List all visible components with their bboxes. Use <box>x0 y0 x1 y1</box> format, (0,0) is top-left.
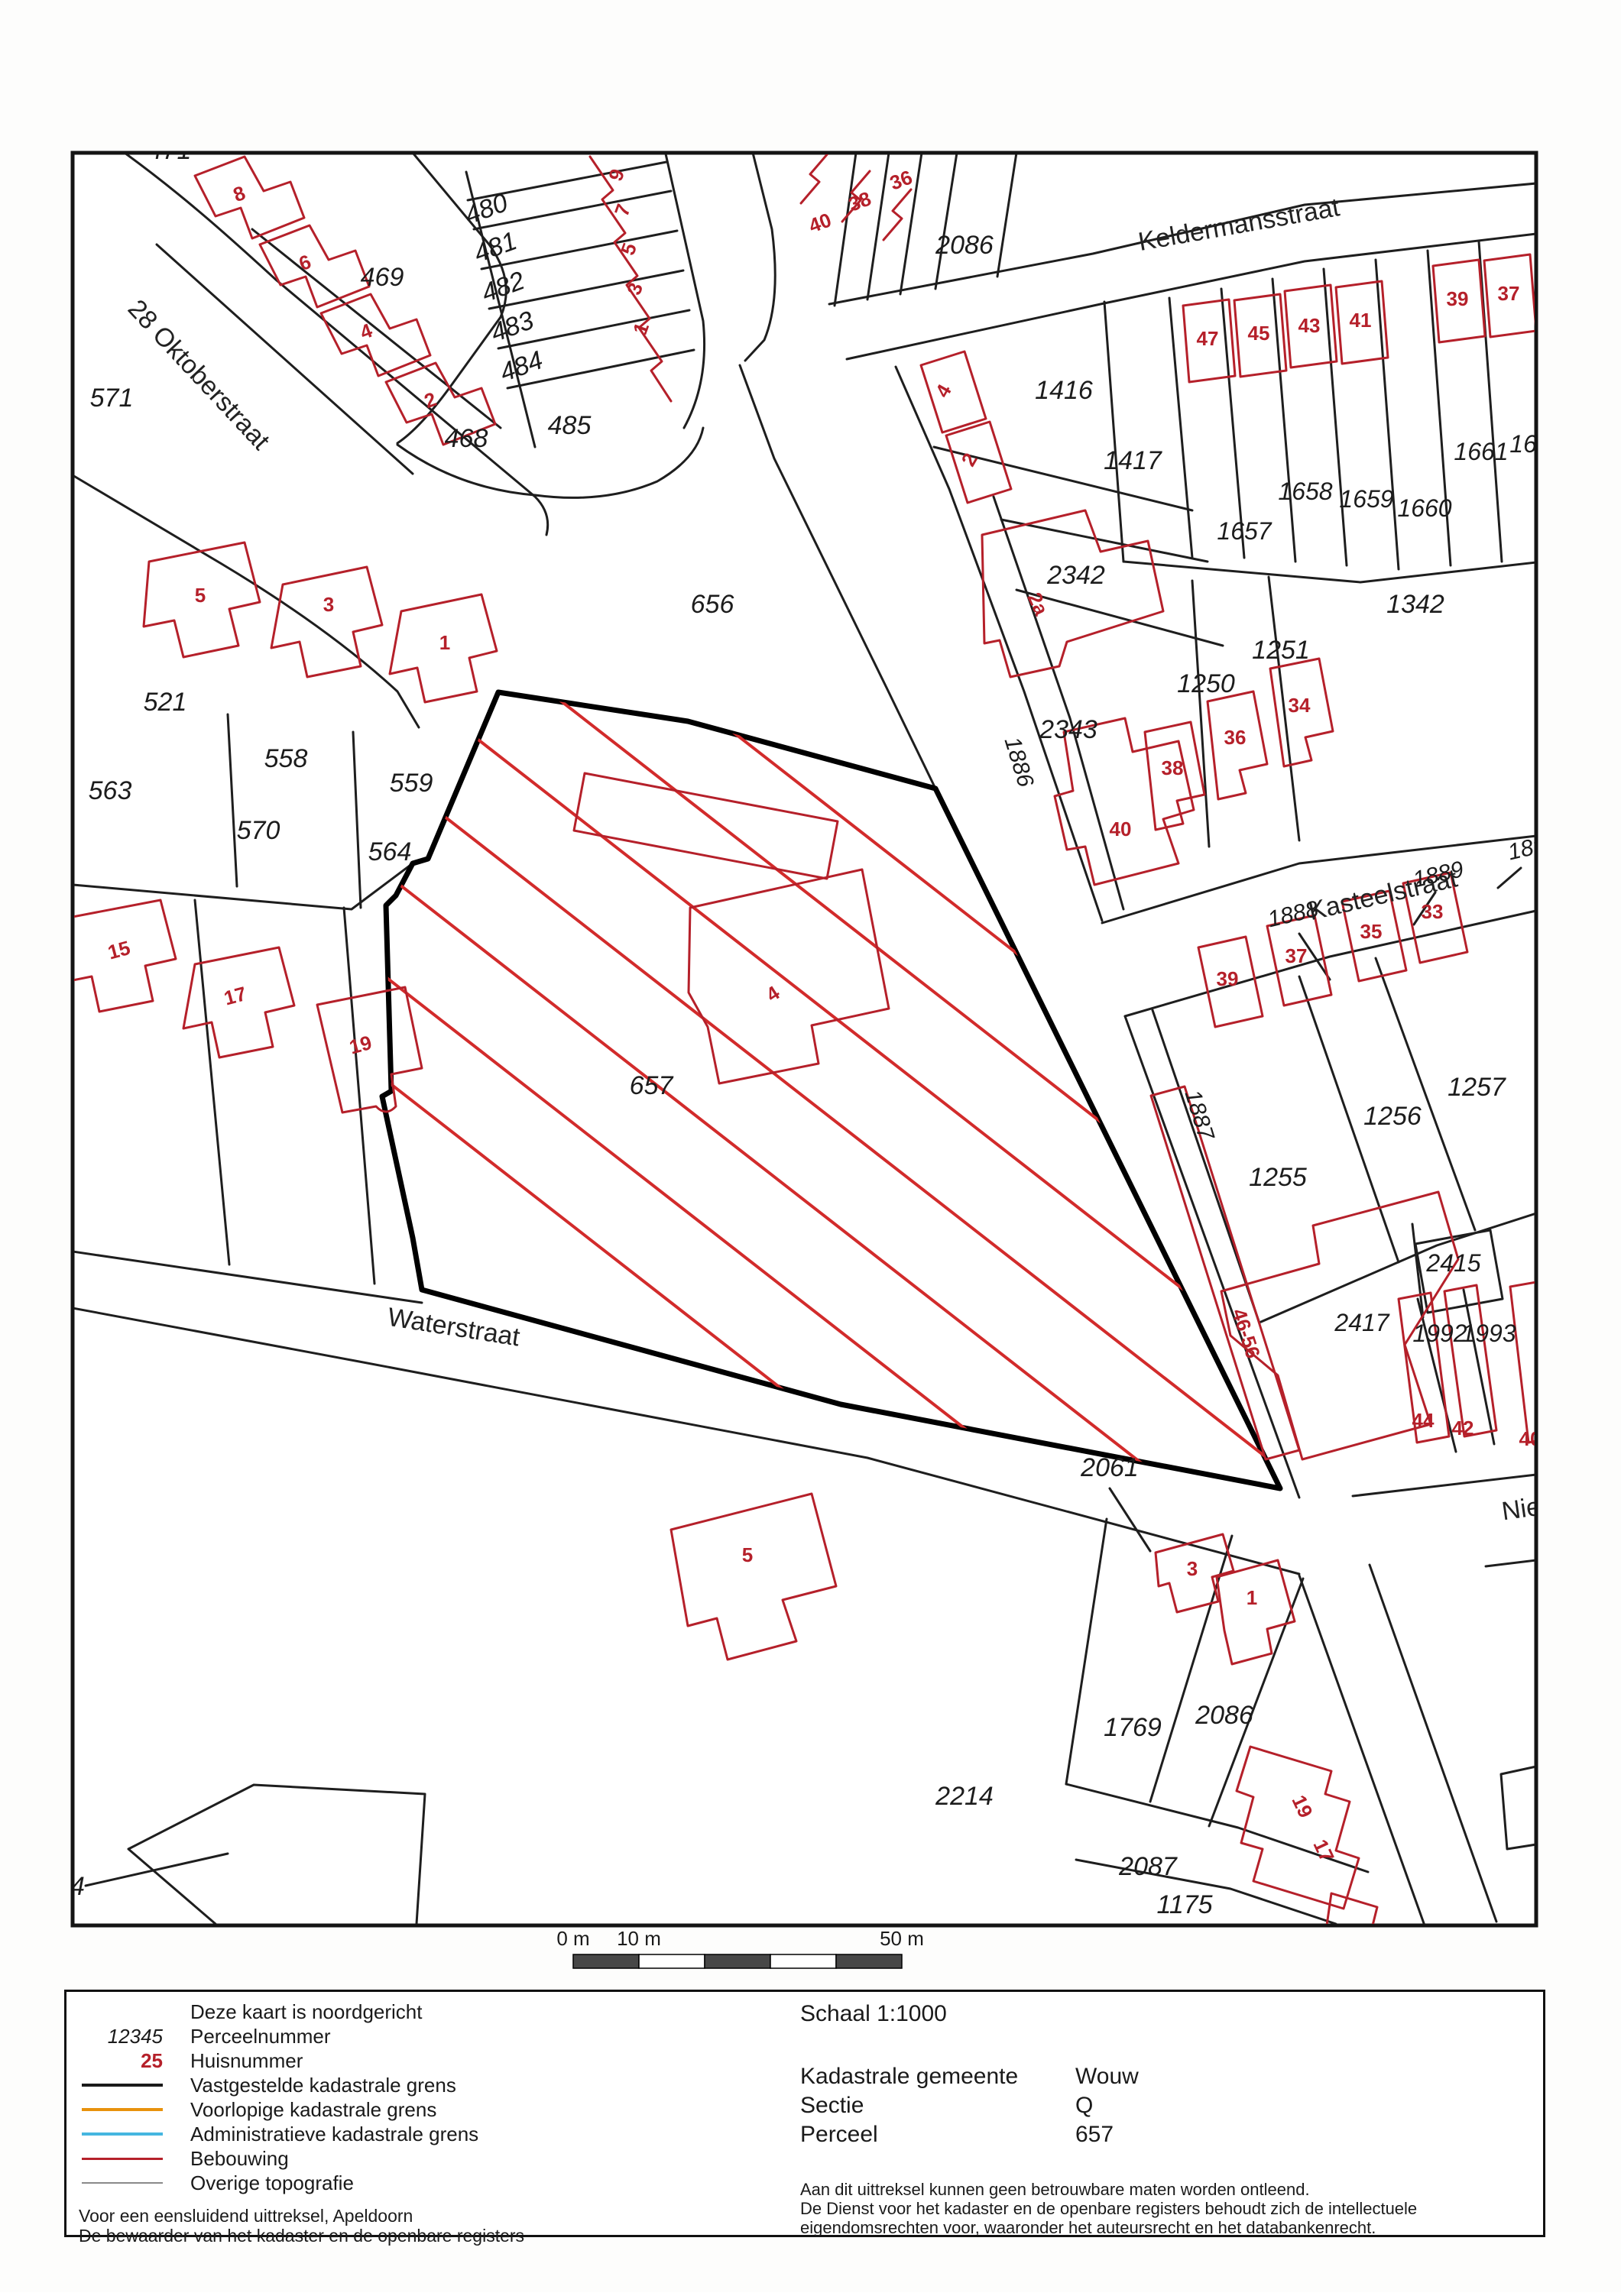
parcel-label-558-12: 558 <box>264 744 308 773</box>
house-label-5-40: 5 <box>742 1543 753 1566</box>
legend: Deze kaart is noordgericht 12345 Perceel… <box>79 2000 751 2246</box>
parcel-label-468-9: 468 <box>445 424 488 453</box>
cadastral-extract-page: 28 OktoberstraatKeldermansstraatKasteels… <box>0 0 1621 2292</box>
parcel-label-1175-50: 1175 <box>1156 1890 1212 1919</box>
house-label-39-32: 39 <box>1217 967 1239 990</box>
legend-line-symbol-0 <box>79 2084 163 2087</box>
map-frame <box>73 153 1536 1925</box>
parcel-label-485-7: 485 <box>548 411 592 440</box>
scale-text: Schaal 1:1000 <box>800 2001 1526 2027</box>
legend-label-4: Overige topografie <box>190 2171 354 2195</box>
scale-ten-label: 10 m <box>617 1927 661 1950</box>
parcel-label-2061-45: 2061 <box>1080 1453 1139 1482</box>
legend-row-1: Voorlopige kadastrale grens <box>79 2097 751 2122</box>
parcel-label-563-14: 563 <box>89 776 132 805</box>
house-label-38-29: 38 <box>1162 756 1184 779</box>
house-label-41-26: 41 <box>1350 309 1372 332</box>
legend-row-2: Administratieve kadastrale grens <box>79 2122 751 2146</box>
parcel-label-2417-41: 2417 <box>1334 1309 1389 1336</box>
info-value-1: Q <box>1075 2091 1093 2120</box>
scale-bar: 0 m 10 m 50 m <box>556 1927 924 1968</box>
parcel-label-1660-28: 1660 <box>1397 494 1451 522</box>
legend-line-symbol-1 <box>79 2108 163 2111</box>
legend-label-3: Bebouwing <box>190 2147 289 2171</box>
parcel-label-471-0: 471 <box>148 136 192 165</box>
parcel-label-2086-19: 2086 <box>935 231 994 260</box>
house-label-1-14: 1 <box>439 631 450 654</box>
legend-row-3: Bebouwing <box>79 2146 751 2171</box>
info-value-2: 657 <box>1075 2120 1114 2149</box>
legend-row-north: Deze kaart is noordgericht <box>79 2000 751 2024</box>
legend-box: Deze kaart is noordgericht 12345 Perceel… <box>64 1990 1545 2237</box>
parcel-label-2087-49: 2087 <box>1118 1852 1178 1881</box>
info-row-1: SectieQ <box>800 2091 1526 2120</box>
house-label-44-37: 44 <box>1412 1409 1435 1432</box>
house-label-1-42: 1 <box>1247 1586 1257 1609</box>
extract-info: Schaal 1:1000 Kadastrale gemeenteWouwSec… <box>800 2001 1526 2237</box>
house-label-42-38: 42 <box>1452 1417 1474 1439</box>
parcel-label-2086-48: 2086 <box>1195 1701 1253 1730</box>
house-label-33-35: 33 <box>1422 900 1444 923</box>
disclaimer-line-1: De Dienst voor het kadaster en de openba… <box>800 2199 1526 2218</box>
legend-parcel-label: Perceelnummer <box>190 2025 331 2048</box>
legend-house-sample: 25 <box>82 2049 163 2073</box>
legend-label-2: Administratieve kadastrale grens <box>190 2123 478 2146</box>
house-label-45-24: 45 <box>1248 322 1270 345</box>
info-label-0: Kadastrale gemeente <box>800 2062 1075 2091</box>
parcel-label-1658-26: 1658 <box>1278 478 1332 505</box>
parcel-label-656-17: 656 <box>691 590 734 619</box>
parcel-label-2415-42: 2415 <box>1425 1249 1480 1277</box>
house-label-40-22: 40 <box>1110 818 1132 840</box>
house-label-47-23: 47 <box>1197 327 1219 350</box>
parcel-label-1661-29: 1661 <box>1454 438 1508 465</box>
house-label-3-41: 3 <box>1187 1557 1198 1580</box>
legend-row-housenumber: 25 Huisnummer <box>79 2048 751 2073</box>
legend-footer: Voor een eensluidend uittreksel, Apeldoo… <box>79 2206 751 2246</box>
parcel-label-1657-25: 1657 <box>1217 517 1272 545</box>
parcel-label-166-30: 166 <box>1509 430 1551 458</box>
disclaimer-line-0: Aan dit uittreksel kunnen geen betrouwba… <box>800 2180 1526 2199</box>
parcel-label-1342-33: 1342 <box>1386 590 1444 619</box>
parcel-label-1992-43: 1992 <box>1412 1320 1467 1347</box>
parcel-label-469-8: 469 <box>361 263 404 292</box>
parcel-label-2343-23: 2343 <box>1039 715 1097 744</box>
parcel-label-1417-21: 1417 <box>1104 446 1162 475</box>
cadastral-map: 28 OktoberstraatKeldermansstraatKasteels… <box>0 0 1621 2292</box>
parcel-label-521-11: 521 <box>144 688 187 717</box>
parcel-label-1257-40: 1257 <box>1448 1073 1506 1102</box>
legend-items: Vastgestelde kadastrale grensVoorlopige … <box>79 2073 751 2195</box>
scale-fifty-label: 50 m <box>880 1927 924 1950</box>
info-grid: Kadastrale gemeenteWouwSectieQPerceel657 <box>800 2062 1526 2149</box>
parcel-label-559-13: 559 <box>390 769 433 798</box>
info-label-2: Perceel <box>800 2120 1075 2149</box>
house-label-36-30: 36 <box>1224 726 1247 749</box>
legend-line-symbol-2 <box>79 2132 163 2136</box>
legend-row-0: Vastgestelde kadastrale grens <box>79 2073 751 2097</box>
house-label-35-34: 35 <box>1360 920 1383 943</box>
parcel-label-1250-31: 1250 <box>1177 669 1235 698</box>
legend-footer-line2: De bewaarder van het kadaster en de open… <box>79 2226 751 2246</box>
legend-parcel-sample: 12345 <box>82 2025 163 2048</box>
parcel-label-1255-38: 1255 <box>1249 1163 1307 1192</box>
legend-row-4: Overige topografie <box>79 2171 751 2195</box>
legend-line-symbol-4 <box>79 2182 163 2184</box>
legend-label-0: Vastgestelde kadastrale grens <box>190 2074 456 2097</box>
disclaimer-line-2: eigendomsrechten voor, waaronder het aut… <box>800 2218 1526 2237</box>
legend-label-1: Voorlopige kadastrale grens <box>190 2098 436 2122</box>
info-value-0: Wouw <box>1075 2062 1139 2091</box>
parcel-label-2214-46: 2214 <box>935 1782 994 1811</box>
legend-footer-line1: Voor een eensluidend uittreksel, Apeldoo… <box>79 2206 751 2226</box>
parcel-label-1769-47: 1769 <box>1104 1713 1162 1742</box>
info-row-0: Kadastrale gemeenteWouw <box>800 2062 1526 2091</box>
legend-house-label: Huisnummer <box>190 2049 303 2073</box>
house-label-37-28: 37 <box>1498 282 1520 305</box>
house-label-43-25: 43 <box>1298 314 1321 337</box>
house-label-37-33: 37 <box>1285 944 1308 967</box>
parcel-label-1993-44: 1993 <box>1461 1320 1516 1347</box>
parcel-label-657-18: 657 <box>630 1071 674 1100</box>
parcel-label-2342-22: 2342 <box>1046 561 1105 590</box>
parcel-label-1659-27: 1659 <box>1339 485 1393 513</box>
disclaimer: Aan dit uittreksel kunnen geen betrouwba… <box>800 2180 1526 2237</box>
parcel-label-1256-39: 1256 <box>1363 1102 1422 1131</box>
parcel-label-564-16: 564 <box>368 837 412 866</box>
legend-north-note: Deze kaart is noordgericht <box>190 2000 422 2024</box>
house-label-5-12: 5 <box>195 584 206 607</box>
parcel-label-1251-32: 1251 <box>1252 636 1310 665</box>
legend-row-parcelnumber: 12345 Perceelnummer <box>79 2024 751 2048</box>
house-label-34-31: 34 <box>1289 694 1311 717</box>
info-row-2: Perceel657 <box>800 2120 1526 2149</box>
parcel-label-571-10: 571 <box>90 384 134 413</box>
parcel-label-1416-20: 1416 <box>1035 376 1093 405</box>
house-label-39-27: 39 <box>1447 287 1469 310</box>
parcel-label-570-15: 570 <box>237 816 280 845</box>
legend-line-symbol-3 <box>79 2158 163 2160</box>
parcel-label-74-51: 74 <box>56 1872 85 1901</box>
scale-zero-label: 0 m <box>556 1927 589 1950</box>
parcel-label-470-1: 470 <box>582 122 626 151</box>
info-label-1: Sectie <box>800 2091 1075 2120</box>
house-label-3-13: 3 <box>323 593 334 616</box>
